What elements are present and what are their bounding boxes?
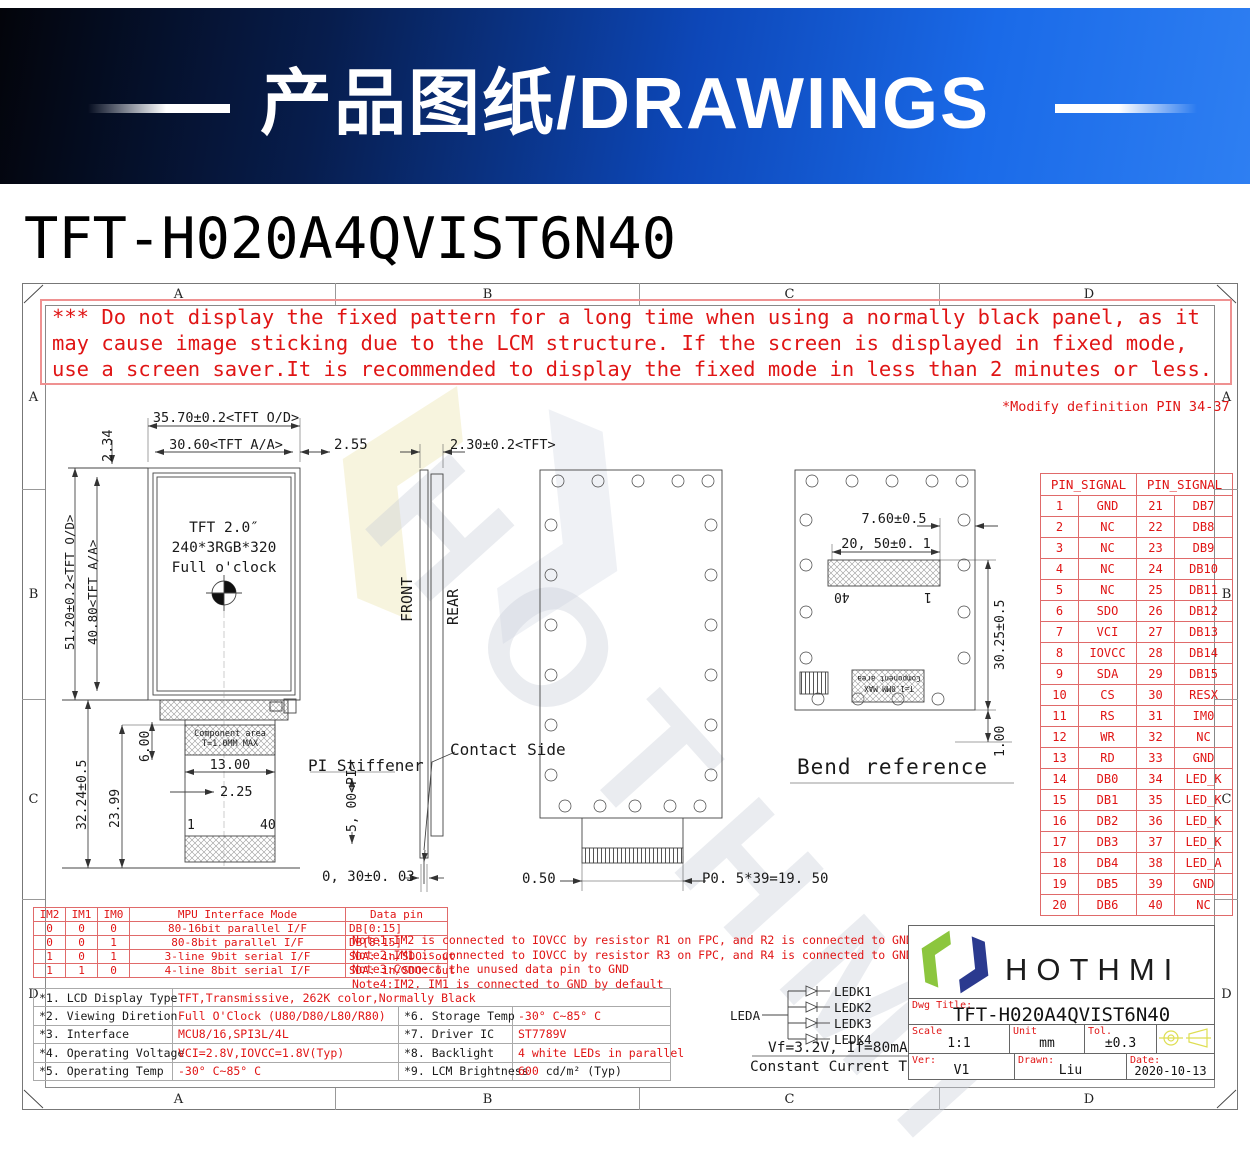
- note-line: Note2:IM1 is connected to IOVCC by resis…: [352, 948, 913, 962]
- spec-key: *3. Interface: [34, 1025, 173, 1043]
- spec-value: MCU8/16,SPI3L/4L: [173, 1025, 399, 1043]
- dim-bend-connector-offset: 7.60±0.5: [852, 511, 936, 527]
- pin-signal-cell: WR: [1079, 727, 1137, 748]
- spec-value-mixed: 600 cd/m² (Typ): [513, 1062, 671, 1080]
- pin-signal-cell: DB7: [1175, 496, 1233, 517]
- pin-table-row: 14 DB0 34 LED_K: [1041, 769, 1233, 790]
- pin-signal-cell: DB1: [1079, 790, 1137, 811]
- front-label: FRONT: [398, 577, 416, 622]
- spec-key: *2. Viewing Diretion: [34, 1007, 173, 1025]
- rear-label: REAR: [444, 589, 462, 625]
- pin-signal-cell: NC: [1175, 895, 1233, 916]
- unit-cell: Unit mm: [1009, 1024, 1084, 1053]
- im1-header: IM1: [66, 908, 98, 922]
- pin-number-cell: 18: [1041, 853, 1079, 874]
- dim-bend-tail: 1.00: [993, 726, 1008, 757]
- dim-pin-edge-offset: 0.50: [522, 871, 556, 887]
- date-cell: Date: 2020-10-13: [1126, 1053, 1214, 1079]
- drawn-value: Liu: [1015, 1063, 1126, 1078]
- warning-line: use a screen saver.It is recommended to …: [52, 357, 1212, 381]
- bend-component-thickness-label: T=1.0MM MAX: [857, 684, 921, 693]
- brand-name: HOTHMI: [1005, 952, 1181, 988]
- dim-fpc-mid-length: 23.99: [108, 789, 123, 828]
- pin-number-cell: 25: [1137, 580, 1175, 601]
- note-line: Note1:IM2 is connected to IOVCC by resis…: [352, 933, 913, 947]
- pin-signal-cell: LED_A: [1175, 853, 1233, 874]
- pin-signal-cell: DB15: [1175, 664, 1233, 685]
- im2-cell: 1: [34, 964, 66, 978]
- pin-number-cell: 20: [1041, 895, 1079, 916]
- pin-signal-cell: DB12: [1175, 601, 1233, 622]
- dim-top-border: 2.34: [100, 429, 116, 462]
- im2-header: IM2: [34, 908, 66, 922]
- pin-number-cell: 4: [1041, 559, 1079, 580]
- version-value: V1: [909, 1063, 1014, 1078]
- pin-number-cell: 26: [1137, 601, 1175, 622]
- spec-row: *2. Viewing Diretion Full O'Clock (U80/D…: [34, 1007, 671, 1025]
- pin-number-cell: 16: [1041, 811, 1079, 832]
- pin-signal-cell: DB0: [1079, 769, 1137, 790]
- spec-value: -30° C~85° C: [173, 1062, 399, 1080]
- pin-number-cell: 10: [1041, 685, 1079, 706]
- pin-signal-cell: DB2: [1079, 811, 1137, 832]
- spec-value: ST7789V: [513, 1025, 671, 1043]
- pin-number-cell: 12: [1041, 727, 1079, 748]
- pin-signal-cell: LED_K: [1175, 811, 1233, 832]
- pin-number-cell: 11: [1041, 706, 1079, 727]
- pin-signal-cell: NC: [1079, 559, 1137, 580]
- leda-label: LEDA: [730, 1008, 760, 1023]
- page-banner: 产品图纸/DRAWINGS: [0, 8, 1250, 184]
- scale-value: 1:1: [909, 1036, 1009, 1051]
- pin-signal-cell: NC: [1079, 517, 1137, 538]
- im1-cell: 0: [66, 950, 98, 964]
- pin-signal-cell: DB9: [1175, 538, 1233, 559]
- pin-number-cell: 35: [1137, 790, 1175, 811]
- spec-key: *9. LCM Brightness: [399, 1062, 513, 1080]
- mpu-mode-cell: 3-line 9bit serial I/F: [130, 950, 346, 964]
- pin-signal-cell: GND: [1175, 748, 1233, 769]
- pin-signal-cell: NC: [1079, 580, 1137, 601]
- spec-table: *1. LCD Display Type TFT,Transmissive, 2…: [33, 988, 671, 1081]
- pin-number-cell: 17: [1041, 832, 1079, 853]
- pin-table-row: 20 DB6 40 NC: [1041, 895, 1233, 916]
- pin-signal-cell: LED_K: [1175, 832, 1233, 853]
- pin-signal-cell: CS: [1079, 685, 1137, 706]
- dim-pin-pitch: P0. 5*39=19. 50: [702, 871, 828, 887]
- pin-number-cell: 23: [1137, 538, 1175, 559]
- pin-signal-cell: IM0: [1175, 706, 1233, 727]
- mpu-mode-cell: 80-8bit parallel I/F: [130, 936, 346, 950]
- pin-table-row: 3 NC 23 DB9: [1041, 538, 1233, 559]
- unit-value: mm: [1010, 1036, 1084, 1051]
- bend-pin-1-label: 1: [924, 589, 932, 604]
- pin-table-row: 4 NC 24 DB10: [1041, 559, 1233, 580]
- bend-reference-label: Bend reference: [797, 755, 988, 779]
- mpu-mode-cell: 80-16bit parallel I/F: [130, 922, 346, 936]
- zone-left-b: B: [22, 490, 45, 700]
- pin-number-cell: 19: [1041, 874, 1079, 895]
- zone-bottom-a: A: [22, 1088, 336, 1110]
- dim-component-width: 13.00: [193, 757, 267, 773]
- pin-table-row: 16 DB2 36 LED_K: [1041, 811, 1233, 832]
- panel-viewing-text: Full o'clock: [164, 560, 284, 576]
- pin-number-cell: 6: [1041, 601, 1079, 622]
- pin-signal-header: PIN_SIGNAL: [1041, 474, 1137, 496]
- pin-number-cell: 31: [1137, 706, 1175, 727]
- pin-number-cell: 39: [1137, 874, 1175, 895]
- mpu-mode-header: MPU Interface Mode: [130, 908, 346, 922]
- pin-table-header-row: PIN_SIGNAL PIN_SIGNAL: [1041, 474, 1233, 496]
- title-block: HOTHMI Dwg Title: TFT-H020A4QVIST6N40 Sc…: [908, 925, 1215, 1080]
- dim-fpc-offset: 2.55: [334, 437, 368, 453]
- pin-signal-cell: SDO: [1079, 601, 1137, 622]
- dim-bend-connector-width: 20, 50±0. 1: [835, 536, 937, 552]
- projection-symbol-icon: [1157, 1025, 1213, 1052]
- panel-size-text: TFT 2.0″: [164, 520, 284, 536]
- ledk1-label: LEDK1: [834, 984, 872, 999]
- pin-1-label: 1: [187, 818, 195, 833]
- pin-signal-cell: GND: [1175, 874, 1233, 895]
- pin-signal-cell: DB4: [1079, 853, 1137, 874]
- pin-number-cell: 21: [1137, 496, 1175, 517]
- pin-number-cell: 30: [1137, 685, 1175, 706]
- im0-cell: 0: [98, 964, 130, 978]
- pin-table-row: 19 DB5 39 GND: [1041, 874, 1233, 895]
- pin-number-cell: 8: [1041, 643, 1079, 664]
- pin-number-cell: 28: [1137, 643, 1175, 664]
- banner-right-dash: [1055, 104, 1197, 113]
- spec-value-unit: cd/m² (Typ): [539, 1064, 622, 1078]
- pin-table-row: 11 RS 31 IM0: [1041, 706, 1233, 727]
- im0-cell: 1: [98, 950, 130, 964]
- spec-key: *5. Operating Temp: [34, 1062, 173, 1080]
- pin-signal-header: PIN_SIGNAL: [1137, 474, 1233, 496]
- pin-signal-cell: IOVCC: [1079, 643, 1137, 664]
- pin-number-cell: 15: [1041, 790, 1079, 811]
- zone-left-c: C: [22, 700, 45, 900]
- pin-table-row: 10 CS 30 RESX: [1041, 685, 1233, 706]
- pin-number-cell: 36: [1137, 811, 1175, 832]
- spec-value: -30° C~85° C: [513, 1007, 671, 1025]
- pin-signal-cell: DB3: [1079, 832, 1137, 853]
- pin-signal-cell: DB8: [1175, 517, 1233, 538]
- pin-number-cell: 29: [1137, 664, 1175, 685]
- spec-value: TFT,Transmissive, 262K color,Normally Bl…: [173, 989, 671, 1007]
- date-value: 2020-10-13: [1127, 1064, 1214, 1078]
- pin-40-label: 40: [260, 818, 276, 833]
- dim-bend-height: 30.25±0.5: [993, 600, 1008, 670]
- contact-side-label: Contact Side: [450, 740, 566, 759]
- modify-definition-note: *Modify definition PIN 34-37: [1002, 399, 1230, 415]
- pin-table-row: 13 RD 33 GND: [1041, 748, 1233, 769]
- pin-number-cell: 27: [1137, 622, 1175, 643]
- spec-key: *6. Storage Temp: [399, 1007, 513, 1025]
- dim-fpc-thickness: 0, 30±0. 03: [322, 869, 415, 885]
- pin-signal-cell: DB13: [1175, 622, 1233, 643]
- pin-table-row: 17 DB3 37 LED_K: [1041, 832, 1233, 853]
- pin-table-row: 5 NC 25 DB11: [1041, 580, 1233, 601]
- dim-panel-outline-height: 51.20±0.2<TFT O/D>: [62, 515, 77, 650]
- im2-cell: 1: [34, 950, 66, 964]
- pin-signal-cell: DB14: [1175, 643, 1233, 664]
- pin-signal-cell: DB5: [1079, 874, 1137, 895]
- ledk2-label: LEDK2: [834, 1000, 872, 1015]
- zone-bottom-b: B: [336, 1088, 640, 1110]
- pin-number-cell: 34: [1137, 769, 1175, 790]
- im2-cell: 0: [34, 922, 66, 936]
- led-test-label: Constant Current Test: [750, 1059, 933, 1075]
- dim-component-center-offset: 2.25: [220, 784, 253, 800]
- spec-value: 600: [518, 1064, 539, 1078]
- tolerance-cell: Tol. ±0.3: [1084, 1024, 1156, 1053]
- component-area-label: Component area: [187, 729, 273, 739]
- warning-line: *** Do not display the fixed pattern for…: [52, 305, 1200, 329]
- pin-signal-cell: RS: [1079, 706, 1137, 727]
- dim-active-area-width: 30.60<TFT A/A>: [158, 437, 294, 453]
- spec-value: Full O'Clock (U80/D80/L80/R80): [173, 1007, 399, 1025]
- banner-title: 产品图纸/DRAWINGS: [260, 44, 990, 149]
- led-vf-label: Vf=3.2V, If=80mA: [768, 1040, 908, 1056]
- ledk3-label: LEDK3: [834, 1016, 872, 1031]
- component-area-thickness-label: T=1.0MM MAX: [187, 739, 273, 749]
- pin-number-cell: 5: [1041, 580, 1079, 601]
- pin-number-cell: 37: [1137, 832, 1175, 853]
- dim-panel-thickness: 2.30±0.2<TFT>: [450, 437, 556, 453]
- pin-signal-cell: SDA: [1079, 664, 1137, 685]
- spec-key: *4. Operating Voltage: [34, 1044, 173, 1062]
- warning-line: may cause image sticking due to the LCM …: [52, 331, 1187, 355]
- hothmi-logo-icon: [915, 928, 995, 996]
- scale-cell: Scale 1:1: [909, 1024, 1009, 1053]
- pin-number-cell: 13: [1041, 748, 1079, 769]
- mpu-mode-cell: 4-line 8bit serial I/F: [130, 964, 346, 978]
- pin-table-row: 18 DB4 38 LED_A: [1041, 853, 1233, 874]
- pin-number-cell: 3: [1041, 538, 1079, 559]
- dwg-title-cell: Dwg Title: TFT-H020A4QVIST6N40: [909, 998, 1214, 1024]
- dim-panel-outline-width: 35.70±0.2<TFT O/D>: [145, 410, 307, 426]
- drawing-sheet-page: 产品图纸/DRAWINGS TFT-H020A4QVIST6N40 HOTHMI…: [0, 0, 1250, 1156]
- pin-table-row: 8 IOVCC 28 DB14: [1041, 643, 1233, 664]
- dim-component-offset: 6.00: [138, 731, 153, 762]
- zone-right-d: D: [1215, 900, 1238, 1088]
- projection-cell: [1156, 1024, 1214, 1053]
- spec-key: *1. LCD Display Type: [34, 989, 173, 1007]
- pin-number-cell: 24: [1137, 559, 1175, 580]
- im0-cell: 0: [98, 922, 130, 936]
- pin-number-cell: 14: [1041, 769, 1079, 790]
- bend-component-area-label: Component area: [857, 674, 921, 683]
- pin-number-cell: 22: [1137, 517, 1175, 538]
- pin-signal-cell: LED_K: [1175, 790, 1233, 811]
- pin-number-cell: 7: [1041, 622, 1079, 643]
- version-cell: Ver: V1: [909, 1053, 1014, 1079]
- dim-fpc-length: 32.24±0.5: [75, 760, 90, 830]
- pin-number-cell: 2: [1041, 517, 1079, 538]
- spec-row: *5. Operating Temp -30° C~85° C *9. LCM …: [34, 1062, 671, 1080]
- im1-cell: 0: [66, 922, 98, 936]
- spec-row: *1. LCD Display Type TFT,Transmissive, 2…: [34, 989, 671, 1007]
- spec-key: *8. Backlight: [399, 1044, 513, 1062]
- pin-number-cell: 40: [1137, 895, 1175, 916]
- pin-table-row: 7 VCI 27 DB13: [1041, 622, 1233, 643]
- spec-key: *7. Driver IC: [399, 1025, 513, 1043]
- pin-signal-cell: LED_K: [1175, 769, 1233, 790]
- im0-cell: 1: [98, 936, 130, 950]
- pin-signal-table: PIN_SIGNAL PIN_SIGNAL 1 GND 21 DB7 2 NC …: [1040, 473, 1233, 916]
- page-title: TFT-H020A4QVIST6N40: [24, 206, 676, 272]
- im0-header: IM0: [98, 908, 130, 922]
- im2-cell: 0: [34, 936, 66, 950]
- pin-signal-cell: RESX: [1175, 685, 1233, 706]
- pin-signal-cell: GND: [1079, 496, 1137, 517]
- pin-number-cell: 32: [1137, 727, 1175, 748]
- spec-row: *4. Operating Voltage VCI=2.8V,IOVCC=1.8…: [34, 1044, 671, 1062]
- pin-table-row: 12 WR 32 NC: [1041, 727, 1233, 748]
- pin-number-cell: 9: [1041, 664, 1079, 685]
- pin-table-row: 9 SDA 29 DB15: [1041, 664, 1233, 685]
- pin-signal-cell: DB6: [1079, 895, 1137, 916]
- pin-signal-cell: NC: [1175, 727, 1233, 748]
- data-pin-header: Data pin: [346, 908, 448, 922]
- pin-number-cell: 33: [1137, 748, 1175, 769]
- banner-left-dash: [88, 104, 230, 113]
- pin-signal-cell: DB11: [1175, 580, 1233, 601]
- pin-number-cell: 1: [1041, 496, 1079, 517]
- pin-signal-cell: DB10: [1175, 559, 1233, 580]
- spec-row: *3. Interface MCU8/16,SPI3L/4L *7. Drive…: [34, 1025, 671, 1043]
- im1-cell: 1: [66, 964, 98, 978]
- dwg-title-value: TFT-H020A4QVIST6N40: [909, 1004, 1214, 1026]
- pin-table-row: 15 DB1 35 LED_K: [1041, 790, 1233, 811]
- pin-signal-cell: VCI: [1079, 622, 1137, 643]
- note-line: Note3:Connect the unused data pin to GND: [352, 962, 629, 976]
- panel-resolution-text: 240*3RGB*320: [164, 540, 284, 556]
- pin-table-row: 1 GND 21 DB7: [1041, 496, 1233, 517]
- dim-active-area-height: 40.80<TFT A/A>: [85, 540, 100, 645]
- pin-table-row: 6 SDO 26 DB12: [1041, 601, 1233, 622]
- pi-stiffener-label: PI Stiffener: [308, 756, 424, 775]
- pin-table-row: 2 NC 22 DB8: [1041, 517, 1233, 538]
- spec-value: 4 white LEDs in parallel: [513, 1044, 671, 1062]
- im1-cell: 0: [66, 936, 98, 950]
- drawn-cell: Drawn: Liu: [1014, 1053, 1126, 1079]
- bend-pin-40-label: 40: [834, 589, 850, 604]
- spec-value: VCI=2.8V,IOVCC=1.8V(Typ): [173, 1044, 399, 1062]
- pin-signal-cell: RD: [1079, 748, 1137, 769]
- tolerance-value: ±0.3: [1085, 1036, 1156, 1051]
- warning-box: *** Do not display the fixed pattern for…: [40, 299, 1232, 385]
- pin-signal-cell: NC: [1079, 538, 1137, 559]
- pin-number-cell: 38: [1137, 853, 1175, 874]
- interface-table-header-row: IM2 IM1 IM0 MPU Interface Mode Data pin: [34, 908, 448, 922]
